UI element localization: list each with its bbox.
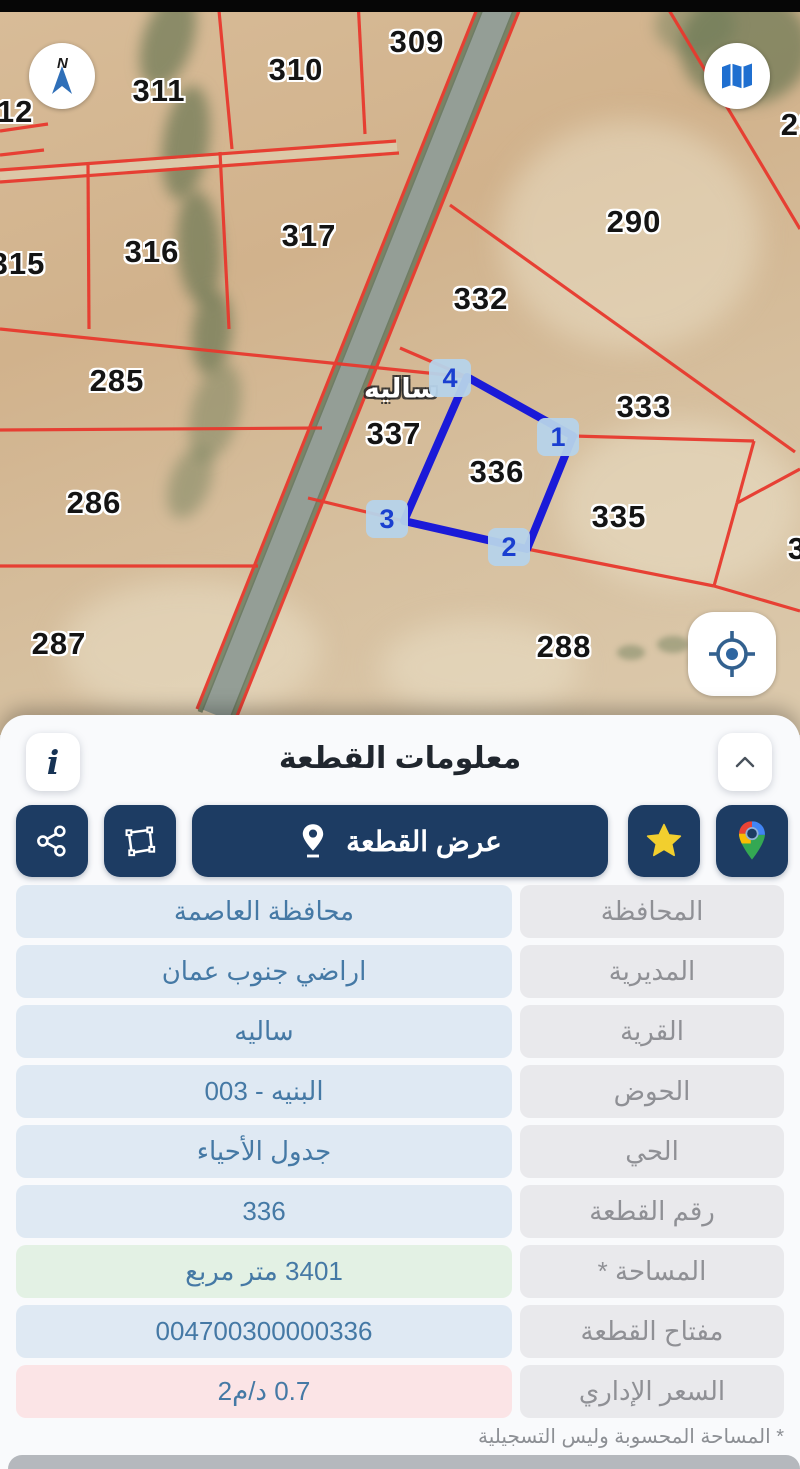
parcel-label-335: 335 [592, 499, 647, 535]
village-label: ساليه [364, 374, 438, 405]
satellite-map[interactable]: 3093103113122931531631729033228533333733… [0, 0, 800, 735]
row-value: 0.7 د/م2 [16, 1365, 512, 1418]
row-label: المديرية [520, 945, 784, 998]
view-parcel-button[interactable]: عرض القطعة [192, 805, 608, 877]
parcel-label-332: 332 [454, 281, 509, 317]
road [216, 0, 502, 715]
row-label: رقم القطعة [520, 1185, 784, 1238]
parcel-label-309: 309 [390, 24, 445, 60]
vertex-label-2: 2 [488, 528, 530, 566]
map-type-button[interactable] [704, 43, 770, 109]
vertex-label-3: 3 [366, 500, 408, 538]
google-maps-button[interactable] [716, 805, 788, 877]
info-row: اراضي جنوب عمانالمديرية [0, 945, 800, 998]
parcel-label-288: 288 [537, 629, 592, 665]
row-value: 3401 متر مربع [16, 1245, 512, 1298]
info-row: 3401 متر مربعالمساحة * [0, 1245, 800, 1298]
parcel-info-sheet: i معلومات القطعة عرض القطعة [0, 715, 800, 1469]
share-button[interactable] [16, 805, 88, 877]
star-icon [644, 821, 684, 861]
location-pin-icon [298, 823, 328, 859]
row-label: السعر الإداري [520, 1365, 784, 1418]
row-value: البنيه - 003 [16, 1065, 512, 1118]
parcel-label-311: 311 [132, 73, 185, 109]
parcel-label-312: 312 [0, 94, 33, 130]
info-row: 336رقم القطعة [0, 1185, 800, 1238]
polygon-tool-button[interactable] [104, 805, 176, 877]
info-row: البنيه - 003الحوض [0, 1065, 800, 1118]
info-row: 004700300000336مفتاح القطعة [0, 1305, 800, 1358]
row-value: محافظة العاصمة [16, 885, 512, 938]
vertex-label-4: 4 [429, 359, 471, 397]
parcel-label-336: 336 [470, 454, 525, 490]
bottom-sheet-handle[interactable] [8, 1455, 800, 1469]
parcel-label-315: 315 [0, 246, 45, 282]
parcel-boundaries [0, 0, 800, 721]
row-label: الحوض [520, 1065, 784, 1118]
row-label: الحي [520, 1125, 784, 1178]
footnote: * المساحة المحسوبة وليس التسجيلية [16, 1424, 784, 1449]
favorite-button[interactable] [628, 805, 700, 877]
polygon-icon [122, 823, 158, 859]
share-icon [35, 824, 69, 858]
parcel-label-29: 29 [781, 107, 800, 143]
row-label: القرية [520, 1005, 784, 1058]
row-value: 336 [16, 1185, 512, 1238]
info-row: ساليهالقرية [0, 1005, 800, 1058]
info-row: جدول الأحياءالحي [0, 1125, 800, 1178]
parcel-label-287: 287 [32, 626, 87, 662]
info-row: 0.7 د/م2السعر الإداري [0, 1365, 800, 1418]
row-label: مفتاح القطعة [520, 1305, 784, 1358]
row-value: اراضي جنوب عمان [16, 945, 512, 998]
google-maps-pin-icon [737, 820, 767, 862]
parcel-label-310: 310 [269, 52, 324, 88]
folded-map-icon [720, 61, 754, 91]
parcel-label-333: 333 [617, 389, 672, 425]
row-value: ساليه [16, 1005, 512, 1058]
parcel-label-337: 337 [367, 416, 422, 452]
chevron-up-icon [735, 756, 755, 768]
status-bar [0, 0, 800, 12]
parcel-label-316: 316 [125, 234, 180, 270]
locate-button[interactable] [688, 612, 776, 696]
parcel-label-290: 290 [607, 204, 662, 240]
parcel-label-285: 285 [90, 363, 145, 399]
vertex-label-1: 1 [537, 418, 579, 456]
crosshair-icon [706, 628, 758, 680]
parcel-label-3: 3 [788, 531, 800, 567]
row-value: جدول الأحياء [16, 1125, 512, 1178]
parcel-label-317: 317 [282, 218, 337, 254]
view-parcel-label: عرض القطعة [346, 825, 502, 858]
compass-icon: N [40, 52, 84, 100]
collapse-button[interactable] [718, 733, 772, 791]
row-label: المحافظة [520, 885, 784, 938]
sheet-title: معلومات القطعة [0, 741, 800, 776]
row-value: 004700300000336 [16, 1305, 512, 1358]
row-label: المساحة * [520, 1245, 784, 1298]
compass-control[interactable]: N [29, 43, 95, 109]
parcel-label-286: 286 [67, 485, 122, 521]
info-row: محافظة العاصمةالمحافظة [0, 885, 800, 938]
